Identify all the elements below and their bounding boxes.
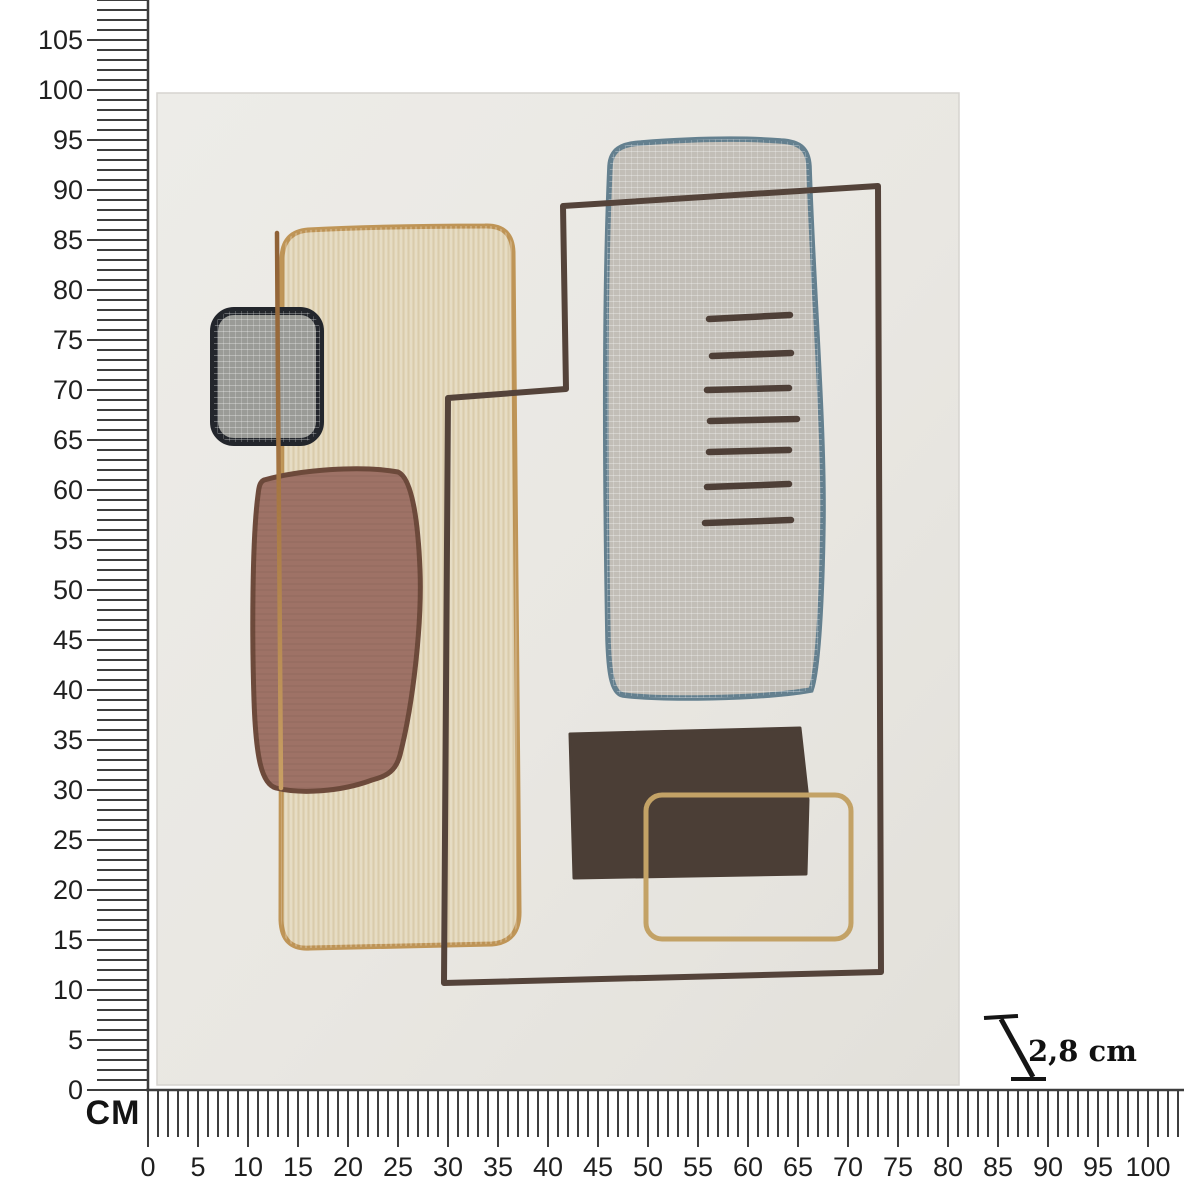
vertical-ruler-label: 65: [53, 425, 83, 455]
brown-dash: [707, 388, 789, 390]
dark-brown-rectangle: [570, 728, 808, 878]
vertical-ruler-label: 100: [38, 75, 83, 105]
depth-indicator-top-cap: [984, 1016, 1018, 1018]
vertical-ruler-label: 105: [38, 25, 83, 55]
vertical-ruler-label: 50: [53, 575, 83, 605]
horizontal-ruler-label: 90: [1033, 1152, 1063, 1182]
vertical-ruler-label: 70: [53, 375, 83, 405]
vertical-ruler-label: 60: [53, 475, 83, 505]
vertical-ruler-label: 5: [68, 1025, 83, 1055]
horizontal-ruler-label: 35: [483, 1152, 513, 1182]
horizontal-ruler-label: 80: [933, 1152, 963, 1182]
brown-dash: [712, 353, 791, 356]
brown-dash: [707, 484, 789, 487]
vertical-ruler-label: 35: [53, 725, 83, 755]
vertical-ruler-label: 25: [53, 825, 83, 855]
vertical-ruler-label: 20: [53, 875, 83, 905]
horizontal-ruler-label: 65: [783, 1152, 813, 1182]
horizontal-ruler-label: 0: [140, 1152, 155, 1182]
horizontal-ruler-label: 55: [683, 1152, 713, 1182]
brown-dash: [709, 315, 790, 319]
horizontal-ruler-label: 20: [333, 1152, 363, 1182]
vertical-ruler-label: 80: [53, 275, 83, 305]
vertical-ruler-label: 85: [53, 225, 83, 255]
vertical-ruler-label: 0: [68, 1075, 83, 1105]
horizontal-ruler-label: 60: [733, 1152, 763, 1182]
vertical-ruler-label: 15: [53, 925, 83, 955]
vertical-ruler-label: 90: [53, 175, 83, 205]
horizontal-ruler-label: 25: [383, 1152, 413, 1182]
horizontal-ruler-label: 45: [583, 1152, 613, 1182]
horizontal-ruler-label: 75: [883, 1152, 913, 1182]
depth-value-label: 2,8 cm: [1028, 1034, 1137, 1068]
horizontal-ruler-label: 5: [190, 1152, 205, 1182]
horizontal-ruler-label: 30: [433, 1152, 463, 1182]
brown-dash: [705, 520, 791, 523]
horizontal-ruler-label: 70: [833, 1152, 863, 1182]
vertical-ruler-label: 40: [53, 675, 83, 705]
vertical-ruler-label: 30: [53, 775, 83, 805]
vertical-ruler-label: 75: [53, 325, 83, 355]
horizontal-ruler-label: 95: [1083, 1152, 1113, 1182]
horizontal-ruler-label: 40: [533, 1152, 563, 1182]
horizontal-ruler-label: 85: [983, 1152, 1013, 1182]
brown-dash: [709, 450, 789, 452]
navy-outline-square-texture: [214, 311, 320, 442]
product-measurement-scene: 0510152025303540455055606570758085909510…: [0, 0, 1200, 1200]
artwork-photo: [157, 93, 959, 1085]
vertical-ruler-label: 45: [53, 625, 83, 655]
ruler-unit-label: CM: [86, 1094, 141, 1132]
horizontal-ruler-label: 15: [283, 1152, 313, 1182]
horizontal-ruler-label: 10: [233, 1152, 263, 1182]
vertical-ruler-label: 10: [53, 975, 83, 1005]
vertical-ruler-label: 95: [53, 125, 83, 155]
horizontal-ruler-label: 50: [633, 1152, 663, 1182]
vertical-ruler-label: 55: [53, 525, 83, 555]
horizontal-ruler-label: 100: [1125, 1152, 1170, 1182]
brown-dash: [710, 419, 797, 421]
